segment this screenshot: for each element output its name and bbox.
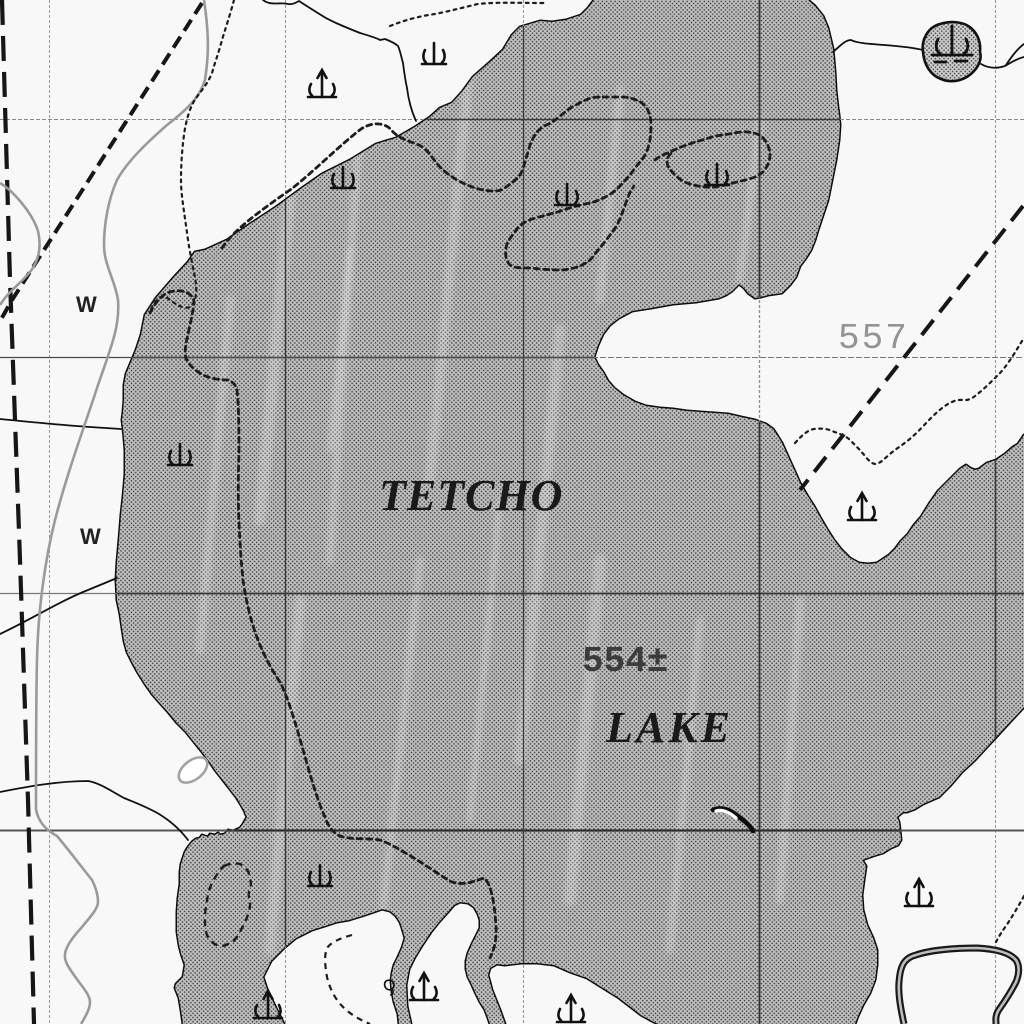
svg-text:LAKE: LAKE	[605, 703, 733, 752]
svg-text:TETCHO: TETCHO	[379, 471, 563, 520]
svg-text:W: W	[76, 292, 97, 317]
svg-text:557: 557	[838, 318, 909, 359]
svg-text:W: W	[80, 524, 101, 549]
svg-text:554±: 554±	[582, 641, 668, 682]
